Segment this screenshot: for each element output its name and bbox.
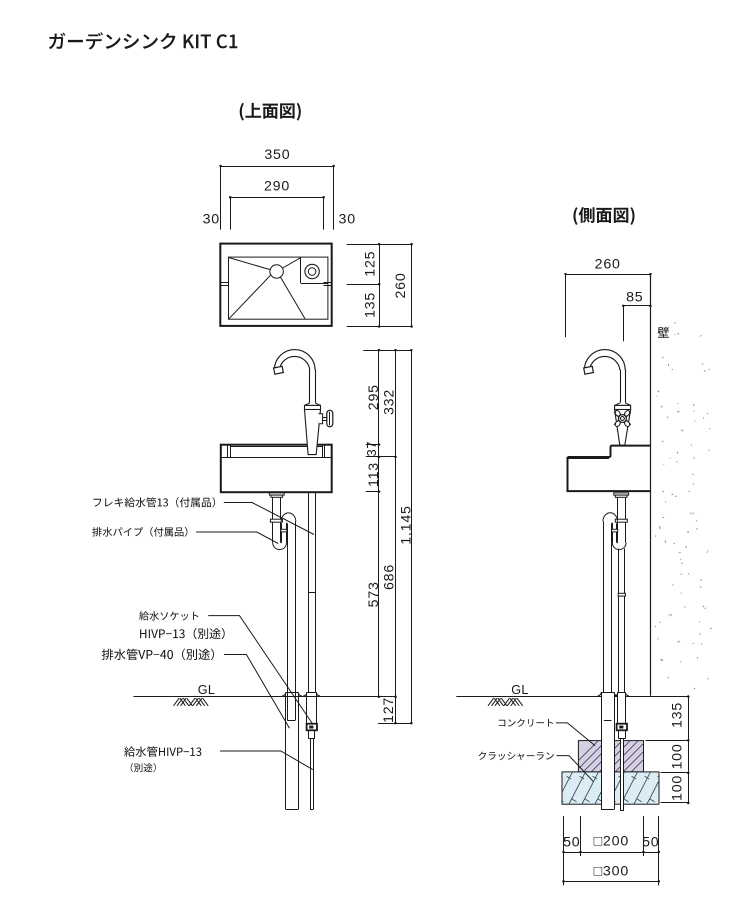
svg-text:100: 100 [669,775,685,801]
svg-text:50: 50 [563,834,580,850]
svg-text:GL: GL [198,683,215,697]
svg-text:85: 85 [626,289,643,305]
svg-text:50: 50 [642,834,659,850]
svg-text:686: 686 [382,564,398,590]
svg-text:295: 295 [366,384,382,410]
svg-text:127: 127 [381,697,397,723]
svg-text:□300: □300 [594,864,629,880]
svg-text:290: 290 [264,178,290,194]
svg-text:332: 332 [381,389,397,415]
svg-text:260: 260 [595,256,621,272]
svg-text:100: 100 [669,743,685,769]
svg-text:37: 37 [365,441,379,457]
svg-text:30: 30 [339,211,356,227]
svg-text:573: 573 [366,581,382,607]
svg-text:□200: □200 [594,833,629,849]
svg-text:GL: GL [511,683,528,697]
svg-text:260: 260 [393,272,409,298]
svg-text:1,145: 1,145 [399,505,415,545]
svg-text:350: 350 [264,147,290,163]
svg-text:113: 113 [366,462,382,487]
svg-text:135: 135 [362,292,378,318]
svg-text:135: 135 [669,702,685,728]
svg-text:30: 30 [203,211,220,227]
svg-text:125: 125 [362,251,378,277]
